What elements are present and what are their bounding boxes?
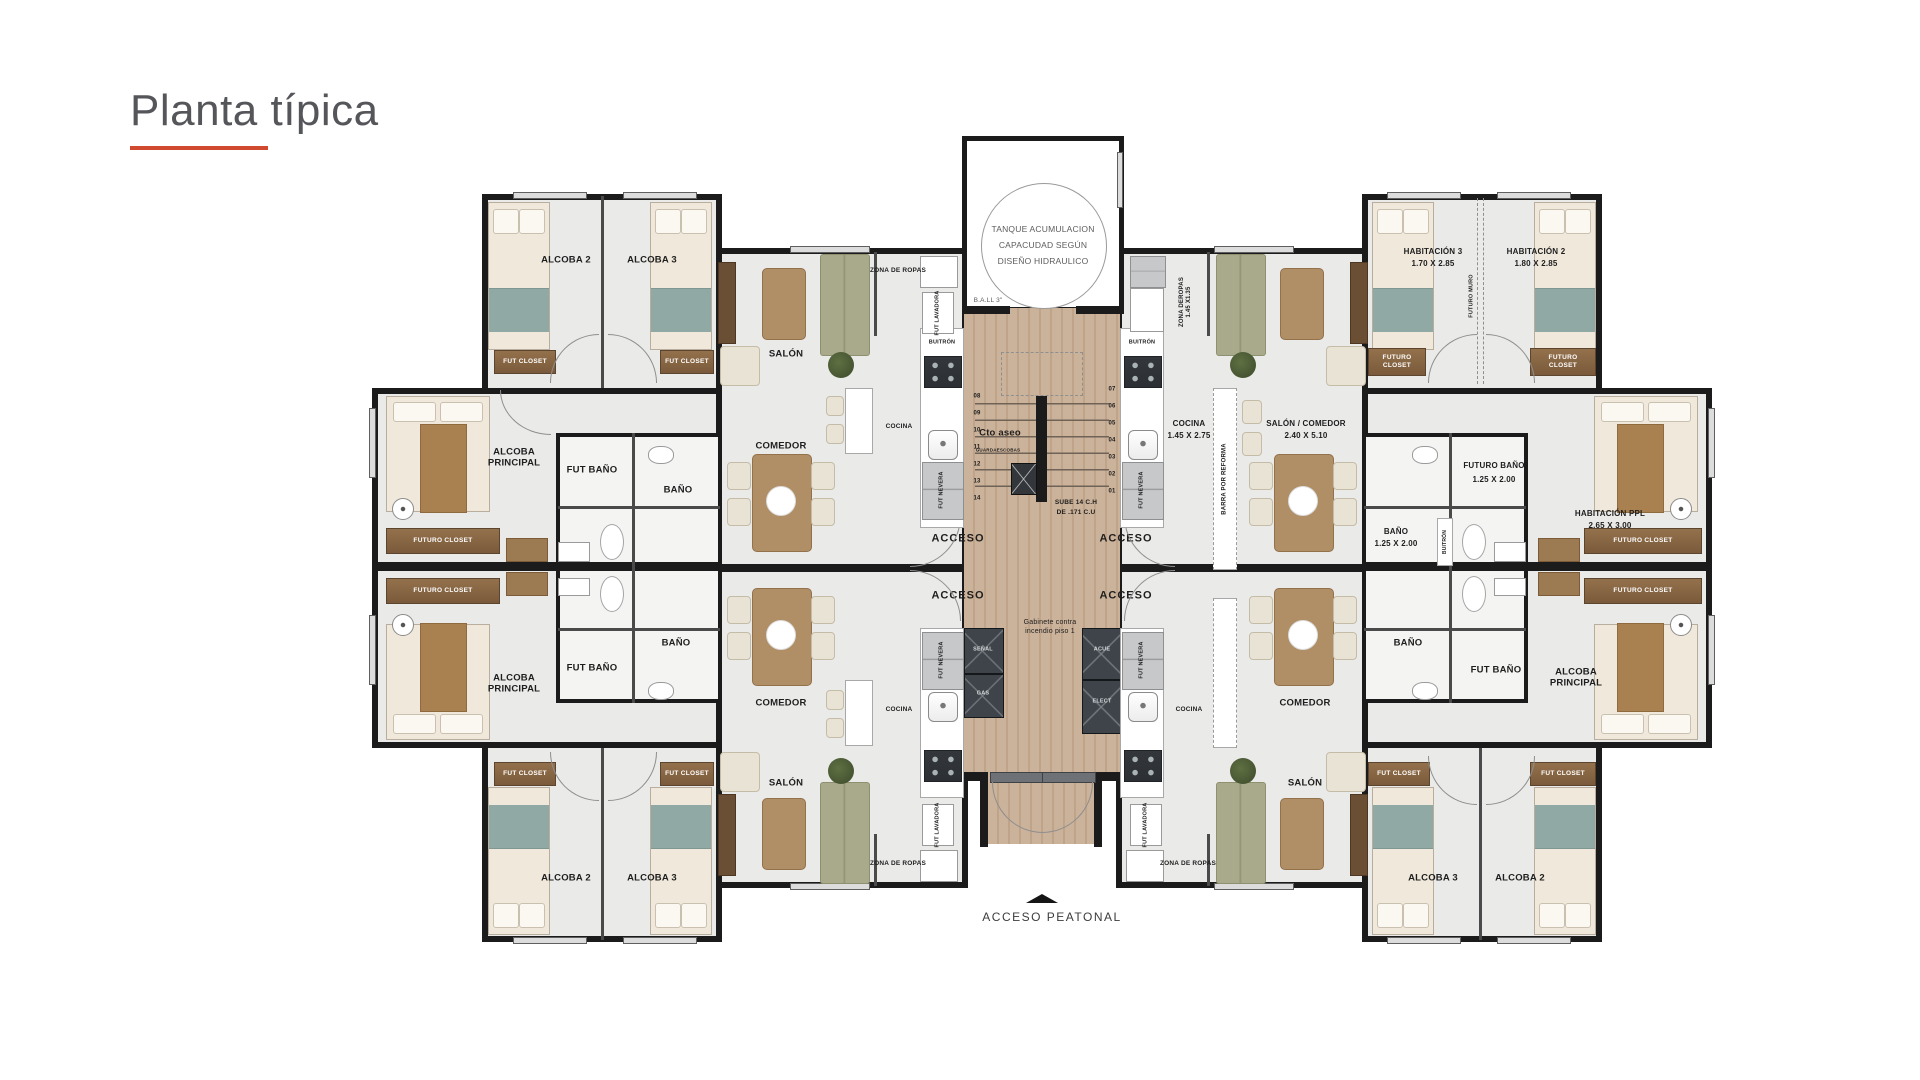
window [1497, 192, 1571, 199]
bar-counter [845, 388, 873, 454]
cleaning-room-label: Cto aseo [979, 427, 1021, 438]
stair-number: 05 [1108, 420, 1115, 427]
shaft-label: GAS [977, 691, 990, 698]
plant [828, 758, 854, 784]
bed [650, 202, 712, 350]
closet-label: FUTURO CLOSET [413, 537, 472, 545]
stove [924, 356, 962, 388]
tank-label: CAPACUDAD SEGÚN [999, 240, 1087, 250]
fridge-label: FUT NEVERA [1139, 641, 1146, 678]
armchair [720, 752, 760, 792]
bed-principal [386, 396, 490, 512]
window [1387, 192, 1461, 199]
sofa [1216, 782, 1266, 884]
stair-number: 10 [973, 427, 980, 434]
stair-number: 02 [1108, 471, 1115, 478]
sofa [820, 254, 870, 356]
acceso-peatonal-label: ACCESO PEATONAL [982, 910, 1121, 924]
room-dim: 1.25 X 2.00 [1374, 539, 1417, 549]
room-label: HABITACIÓN PPL [1575, 509, 1645, 519]
window [790, 883, 870, 890]
room-label: COCINA [1176, 706, 1203, 714]
bed [1372, 202, 1434, 350]
room-label: SALÓN [769, 348, 803, 359]
closet-label: FUT CLOSET [665, 770, 709, 778]
stove [1124, 356, 1162, 388]
zona-deropas-dim: 1.45 X1.35 [1186, 267, 1193, 337]
stair-number: 07 [1108, 386, 1115, 393]
stool [826, 396, 844, 416]
room-label: ZONA DE ROPAS [866, 860, 930, 868]
sofa [1216, 254, 1266, 356]
shaft-label: SEÑAL [973, 647, 993, 654]
vanity-sink [1494, 578, 1526, 596]
room-label: BAÑO [1394, 637, 1423, 648]
bed-principal [386, 624, 490, 740]
washer [1130, 288, 1164, 332]
wall [1076, 306, 1124, 314]
chair [727, 462, 751, 490]
closet: FUTURO CLOSET [1368, 348, 1426, 376]
sink [1128, 430, 1158, 460]
room-label: ALCOBA PRINCIPAL [482, 447, 546, 470]
nightstand-lamp [1670, 498, 1692, 520]
plant [828, 352, 854, 378]
tv-console [718, 794, 736, 876]
closet: FUTURO CLOSET [1530, 348, 1596, 376]
wall [558, 628, 720, 631]
fridge-label: FUT NEVERA [939, 471, 946, 508]
tank-label: TANQUE ACUMULACION [991, 224, 1094, 234]
bed [650, 787, 712, 935]
sofa [820, 782, 870, 884]
party-wall-left [372, 562, 722, 571]
washer-label: FUT LAVADORA [935, 291, 942, 336]
tv-console [1350, 794, 1368, 876]
closet: FUT CLOSET [1368, 762, 1430, 786]
shaft-label: ACUE [1094, 647, 1110, 654]
room-label: ALCOBA PRINCIPAL [1544, 667, 1608, 690]
bed [488, 202, 550, 350]
room-label: COMEDOR [1279, 697, 1330, 708]
bathtub [600, 524, 624, 560]
stair-number: 08 [973, 393, 980, 400]
closet-label: FUTURO CLOSET [1377, 354, 1417, 370]
wall [1364, 628, 1526, 631]
stair-number: 13 [973, 478, 980, 485]
stair-number: 04 [1108, 437, 1115, 444]
chair [727, 596, 751, 624]
washer-label: FUT LAVADORA [1143, 803, 1150, 848]
stove [1124, 750, 1162, 782]
stair-number: 12 [973, 461, 980, 468]
chair [727, 632, 751, 660]
bathtub [1462, 576, 1486, 612]
window [1214, 883, 1294, 890]
chair [1249, 632, 1273, 660]
shaft-x-box [1011, 463, 1037, 495]
closet: FUT CLOSET [1530, 762, 1596, 786]
room-label: FUT BAÑO [560, 662, 624, 673]
stove [924, 750, 962, 782]
closet: FUTURO CLOSET [1584, 578, 1702, 604]
plant [1230, 352, 1256, 378]
title-underline [130, 146, 268, 150]
window [369, 615, 376, 685]
coffee-table [762, 798, 806, 870]
tv-console [718, 262, 736, 344]
side-table [1538, 538, 1580, 562]
plate [1288, 486, 1318, 516]
closet-label: FUT CLOSET [1377, 770, 1421, 778]
closet-label: FUT CLOSET [665, 358, 709, 366]
chair [1249, 596, 1273, 624]
chair [811, 632, 835, 660]
plate [1288, 620, 1318, 650]
window [1497, 937, 1571, 944]
stair-number: 11 [974, 444, 981, 451]
future-wall-line [1477, 198, 1478, 384]
room-label: FUTURO BAÑO [1459, 461, 1529, 471]
stool [826, 690, 844, 710]
stair-note: SUBE 14 C.H [1055, 499, 1097, 507]
chair [1333, 462, 1357, 490]
fridge-label: FUT NEVERA [939, 641, 946, 678]
chair [727, 498, 751, 526]
closet: FUT CLOSET [660, 350, 714, 374]
room-label: ALCOBA 3 [1408, 872, 1458, 883]
duct-label: BUITRÓN [929, 340, 955, 347]
stair-note: DE .171 C.U [1057, 509, 1096, 517]
room-label: ALCOBA 2 [541, 872, 591, 883]
future-wall-line [1483, 198, 1484, 384]
room-label: ZONA DE ROPAS [866, 267, 930, 275]
future-wall-label: FUTURO MURO [1469, 274, 1476, 317]
room-label: HABITACIÓN 3 [1404, 247, 1463, 257]
future-bar-strip [1213, 598, 1237, 748]
side-table [1538, 572, 1580, 596]
room-label: COCINA [886, 423, 913, 431]
closet: FUT CLOSET [660, 762, 714, 786]
closet-label: FUTURO CLOSET [1543, 354, 1583, 370]
wall [601, 196, 604, 388]
wall [558, 506, 720, 509]
armchair [1326, 752, 1366, 792]
toilet [1412, 682, 1438, 700]
sink [928, 692, 958, 722]
chair [1333, 632, 1357, 660]
closet-label: FUTURO CLOSET [1613, 537, 1672, 545]
fire-cabinet-note: Gabinete contra [1024, 619, 1077, 627]
toilet [1412, 446, 1438, 464]
window [623, 937, 697, 944]
plant [1230, 758, 1256, 784]
room-label: ALCOBA PRINCIPAL [482, 673, 546, 696]
chair [811, 498, 835, 526]
window [623, 192, 697, 199]
room-label-vertical: ZONA DEROPAS 1.45 X1.35 [1179, 267, 1193, 337]
wall [1364, 506, 1526, 509]
window [1708, 408, 1715, 478]
bathtub [600, 576, 624, 612]
room-label: SALÓN [1288, 777, 1322, 788]
shaft-label: ELECT [1092, 699, 1111, 706]
closet: FUTURO CLOSET [386, 578, 500, 604]
coffee-table [1280, 268, 1324, 340]
room-label: ALCOBA 3 [627, 254, 677, 265]
wall [1479, 748, 1482, 940]
duct-label: BUITRÓN [1442, 530, 1448, 554]
wall [1207, 252, 1210, 336]
room-label: FUT BAÑO [560, 464, 624, 475]
closet: FUTURO CLOSET [386, 528, 500, 554]
tv-console [1350, 262, 1368, 344]
room-label: BAÑO [1384, 527, 1408, 537]
wall [1449, 433, 1452, 703]
bed-principal [1594, 624, 1698, 740]
laundry-box [1130, 256, 1166, 288]
armchair [720, 346, 760, 386]
plate [766, 486, 796, 516]
window [369, 408, 376, 478]
wall [601, 748, 604, 940]
duct-label: BUITRÓN [1129, 340, 1155, 347]
broom-label: GUARDAESCOBAS [976, 447, 1021, 452]
washer-label: FUT LAVADORA [935, 803, 942, 848]
nightstand-lamp [392, 614, 414, 636]
bathtub [1462, 524, 1486, 560]
floor-plan-page: Planta típica [0, 0, 1920, 1080]
room-label: SALÓN / COMEDOR [1266, 419, 1345, 429]
closet-label: FUT CLOSET [503, 770, 547, 778]
window [513, 192, 587, 199]
chair [1333, 596, 1357, 624]
stair-number: 14 [973, 495, 980, 502]
stool [826, 718, 844, 738]
vanity-sink [558, 542, 590, 562]
room-label: SALÓN [769, 777, 803, 788]
shaft-acue [1082, 628, 1124, 680]
closet-label: FUTURO CLOSET [1613, 587, 1672, 595]
room-label: ALCOBA 2 [541, 254, 591, 265]
duct-label: B.A.LL 3" [974, 297, 1003, 305]
room-label: COMEDOR [755, 697, 806, 708]
bed [1534, 202, 1596, 350]
wall [632, 433, 635, 703]
stool [1242, 400, 1262, 424]
room-label: ZONA DE ROPAS [1156, 860, 1220, 868]
room-dim: 2.40 X 5.10 [1284, 431, 1327, 441]
stair-number: 01 [1108, 488, 1115, 495]
shaft-elect [1082, 680, 1124, 734]
room-dim: 1.70 X 2.85 [1411, 259, 1454, 269]
stair-number: 03 [1108, 454, 1115, 461]
chair [1249, 498, 1273, 526]
room-label: ALCOBA 3 [627, 872, 677, 883]
chair [1249, 462, 1273, 490]
chair [1333, 498, 1357, 526]
window [1387, 937, 1461, 944]
closet: FUTURO CLOSET [1584, 528, 1702, 554]
page-title: Planta típica [130, 86, 379, 136]
fridge-label: FUT NEVERA [1139, 471, 1146, 508]
stair-number: 06 [1108, 403, 1115, 410]
stair-stringer-wall [1036, 396, 1047, 502]
coffee-table [762, 268, 806, 340]
party-wall-right [1362, 562, 1712, 571]
room-dim: 1.80 X 2.85 [1514, 259, 1557, 269]
fire-cabinet-note: incendio piso 1 [1025, 628, 1075, 636]
stool [826, 424, 844, 444]
nightstand-lamp [392, 498, 414, 520]
bed-principal [1594, 396, 1698, 512]
closet-label: FUT CLOSET [1541, 770, 1585, 778]
room-label: HABITACIÓN 2 [1507, 247, 1566, 257]
window [513, 937, 587, 944]
vanity-sink [1494, 542, 1526, 562]
window [1117, 152, 1123, 208]
wall [1094, 773, 1102, 847]
sink [1128, 692, 1158, 722]
room-label: BAÑO [664, 484, 693, 495]
future-bar-label: BARRA POR REFORMA [1221, 443, 1228, 515]
room-dim: 1.45 X 2.75 [1167, 431, 1210, 441]
chair [811, 596, 835, 624]
side-table [506, 538, 548, 562]
entrance-arrow-icon [1026, 894, 1058, 903]
wall [874, 252, 877, 336]
sink [928, 430, 958, 460]
zona-deropas-text: ZONA DEROPAS [1179, 267, 1186, 337]
room-label: COMEDOR [755, 440, 806, 451]
coffee-table [1280, 798, 1324, 870]
closet-label: FUTURO CLOSET [413, 587, 472, 595]
tank-label: DISEÑO HIDRAULICO [998, 256, 1089, 266]
wall [980, 773, 988, 847]
side-table [506, 572, 548, 596]
room-label: COCINA [886, 706, 913, 714]
closet-label: FUT CLOSET [503, 358, 547, 366]
room-dim: 1.25 X 2.00 [1472, 475, 1515, 485]
bed [488, 787, 550, 935]
stool [1242, 432, 1262, 456]
bed [1534, 787, 1596, 935]
chair [811, 462, 835, 490]
armchair [1326, 346, 1366, 386]
room-label: COCINA [1173, 419, 1206, 429]
toilet [648, 682, 674, 700]
bed [1372, 787, 1434, 935]
toilet [648, 446, 674, 464]
vanity-sink [558, 578, 590, 596]
room-label: BAÑO [662, 637, 691, 648]
window [1708, 615, 1715, 685]
room-label: FUT BAÑO [1464, 664, 1528, 675]
closet: FUT CLOSET [494, 762, 556, 786]
nightstand-lamp [1670, 614, 1692, 636]
window [1214, 246, 1294, 253]
wall [964, 306, 1010, 314]
stair-number: 09 [973, 410, 980, 417]
room-label: ALCOBA 2 [1495, 872, 1545, 883]
closet: FUT CLOSET [494, 350, 556, 374]
bar-counter [845, 680, 873, 746]
plate [766, 620, 796, 650]
window [790, 246, 870, 253]
